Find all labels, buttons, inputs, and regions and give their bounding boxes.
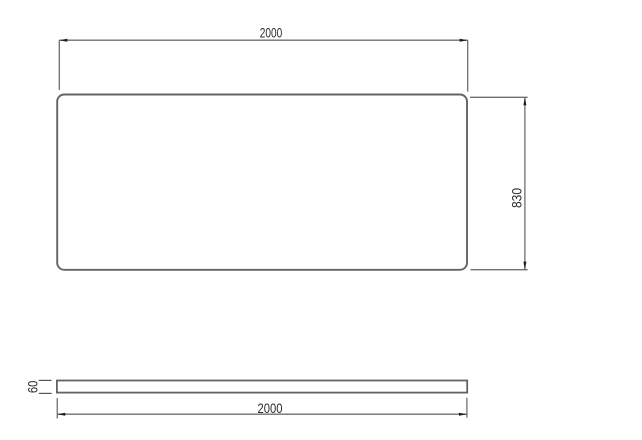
svg-text:2000: 2000 <box>260 25 283 41</box>
svg-text:2000: 2000 <box>258 400 283 416</box>
svg-text:830: 830 <box>509 188 525 208</box>
svg-text:60: 60 <box>25 380 41 393</box>
